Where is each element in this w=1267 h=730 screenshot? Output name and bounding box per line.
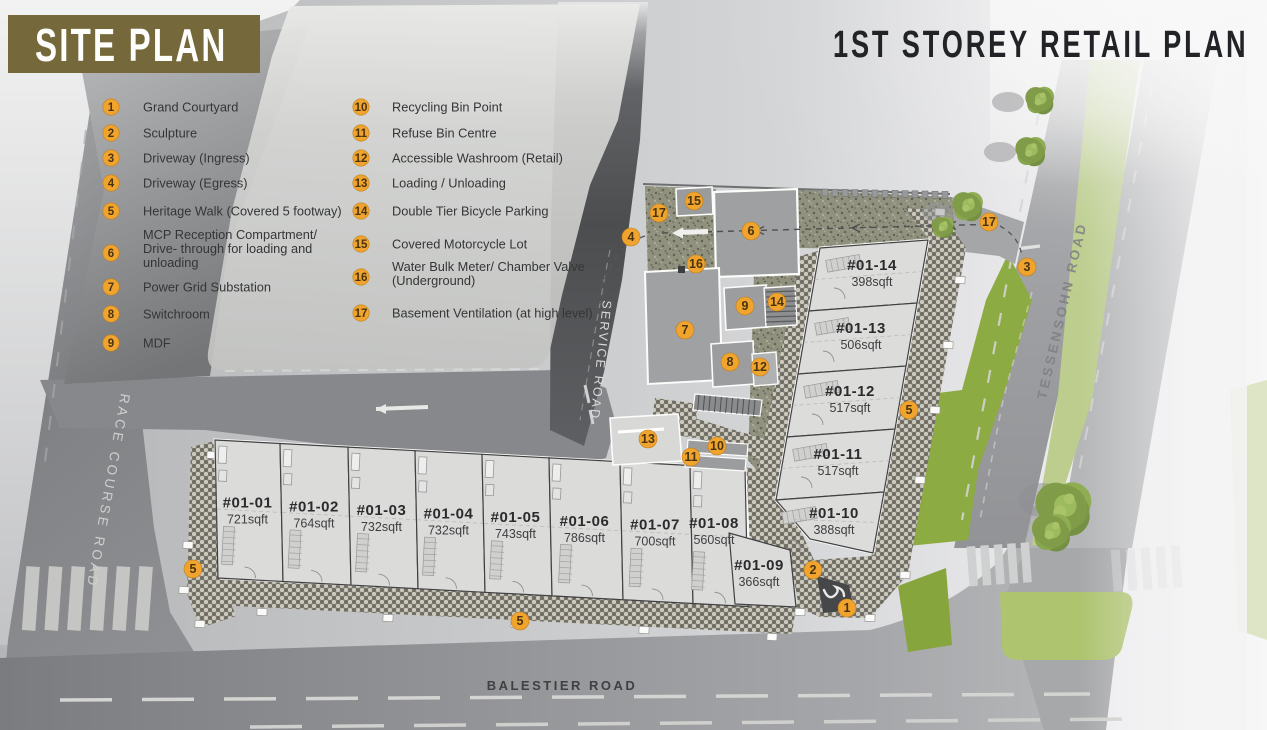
svg-text:Double Tier Bicycle Parking: Double Tier Bicycle Parking: [392, 204, 548, 219]
svg-text:560sqft: 560sqft: [693, 533, 735, 547]
svg-text:4: 4: [108, 178, 115, 190]
svg-text:9: 9: [742, 299, 749, 313]
svg-text:8: 8: [108, 309, 115, 321]
svg-text:11: 11: [355, 128, 368, 140]
svg-text:15: 15: [687, 194, 701, 208]
svg-text:2: 2: [108, 128, 114, 140]
svg-text:#01-06: #01-06: [560, 513, 610, 530]
svg-text:388sqft: 388sqft: [813, 523, 855, 537]
svg-text:12: 12: [355, 153, 368, 165]
svg-text:#01-05: #01-05: [491, 509, 541, 526]
svg-text:398sqft: 398sqft: [851, 275, 893, 289]
svg-text:Sculpture: Sculpture: [143, 126, 197, 141]
svg-text:Power Grid Substation: Power Grid Substation: [143, 280, 271, 295]
svg-text:17: 17: [355, 308, 368, 320]
svg-text:7: 7: [108, 282, 114, 294]
svg-text:1ST STOREY RETAIL PLAN: 1ST STOREY RETAIL PLAN: [833, 22, 1249, 65]
svg-text:732sqft: 732sqft: [361, 520, 403, 534]
svg-text:Covered Motorcycle Lot: Covered Motorcycle Lot: [392, 237, 528, 252]
svg-text:3: 3: [108, 153, 114, 165]
svg-text:#01-04: #01-04: [424, 506, 474, 523]
svg-text:6: 6: [108, 248, 114, 260]
svg-text:Basement Ventilation (at high: Basement Ventilation (at high level): [392, 306, 593, 321]
svg-text:Accessible Washroom (Retail): Accessible Washroom (Retail): [392, 151, 563, 166]
svg-text:unloading: unloading: [143, 255, 199, 270]
svg-text:SITE PLAN: SITE PLAN: [35, 21, 227, 71]
svg-text:10: 10: [710, 439, 724, 453]
svg-text:Drive- through for loading and: Drive- through for loading and: [143, 241, 312, 256]
svg-text:#01-03: #01-03: [357, 502, 407, 519]
svg-text:366sqft: 366sqft: [738, 575, 780, 589]
svg-text:Refuse Bin Centre: Refuse Bin Centre: [392, 126, 497, 141]
svg-text:16: 16: [689, 257, 703, 271]
svg-text:MDF: MDF: [143, 336, 171, 351]
svg-text:#01-02: #01-02: [289, 498, 339, 515]
svg-text:Heritage Walk (Covered 5 footw: Heritage Walk (Covered 5 footway): [143, 204, 342, 219]
svg-text:5: 5: [517, 614, 524, 628]
svg-text:743sqft: 743sqft: [495, 527, 537, 541]
svg-text:Water Bulk Meter/ Chamber Valv: Water Bulk Meter/ Chamber Valve: [392, 259, 585, 274]
svg-text:#01-08: #01-08: [689, 515, 739, 532]
svg-text:4: 4: [628, 230, 635, 244]
svg-text:732sqft: 732sqft: [428, 524, 470, 538]
svg-text:14: 14: [355, 206, 368, 218]
svg-text:Grand Courtyard: Grand Courtyard: [143, 100, 238, 115]
svg-text:517sqft: 517sqft: [829, 401, 871, 415]
svg-text:15: 15: [355, 239, 368, 251]
svg-text:#01-13: #01-13: [836, 320, 886, 337]
svg-text:Loading / Unloading: Loading / Unloading: [392, 176, 506, 191]
svg-text:#01-09: #01-09: [734, 557, 784, 574]
svg-text:13: 13: [355, 178, 368, 190]
svg-text:786sqft: 786sqft: [564, 531, 606, 545]
svg-text:2: 2: [810, 563, 817, 577]
svg-text:764sqft: 764sqft: [293, 516, 335, 530]
svg-text:#01-11: #01-11: [814, 446, 863, 463]
svg-text:8: 8: [727, 355, 734, 369]
svg-text:#01-01: #01-01: [223, 495, 273, 512]
svg-text:#01-10: #01-10: [809, 505, 859, 522]
svg-text:(Underground): (Underground): [392, 273, 475, 288]
svg-text:3: 3: [1024, 260, 1031, 274]
svg-text:5: 5: [108, 206, 115, 218]
svg-text:17: 17: [982, 215, 996, 229]
svg-text:#01-07: #01-07: [630, 517, 680, 534]
svg-text:Driveway (Ingress): Driveway (Ingress): [143, 151, 250, 166]
svg-text:10: 10: [355, 102, 368, 114]
svg-text:Driveway (Egress): Driveway (Egress): [143, 176, 248, 191]
svg-text:Recycling Bin Point: Recycling Bin Point: [392, 100, 503, 115]
svg-text:17: 17: [652, 206, 666, 220]
svg-text:13: 13: [641, 432, 655, 446]
svg-text:16: 16: [355, 272, 368, 284]
svg-text:BALESTIER ROAD: BALESTIER ROAD: [487, 678, 638, 693]
svg-text:14: 14: [770, 295, 784, 309]
svg-text:1: 1: [108, 102, 115, 114]
svg-text:5: 5: [190, 562, 197, 576]
svg-text:7: 7: [682, 323, 689, 337]
svg-text:700sqft: 700sqft: [634, 535, 676, 549]
svg-text:6: 6: [748, 224, 755, 238]
svg-text:5: 5: [906, 403, 913, 417]
svg-text:721sqft: 721sqft: [227, 513, 269, 527]
svg-text:MCP Reception Compartment/: MCP Reception Compartment/: [143, 227, 317, 242]
svg-text:11: 11: [684, 450, 697, 464]
svg-text:Switchroom: Switchroom: [143, 307, 210, 322]
svg-text:1: 1: [844, 601, 851, 615]
svg-text:517sqft: 517sqft: [817, 464, 859, 478]
svg-text:#01-14: #01-14: [847, 257, 897, 274]
svg-text:#01-12: #01-12: [825, 383, 875, 400]
svg-text:9: 9: [108, 338, 114, 350]
svg-text:506sqft: 506sqft: [840, 338, 882, 352]
svg-text:12: 12: [753, 360, 767, 374]
